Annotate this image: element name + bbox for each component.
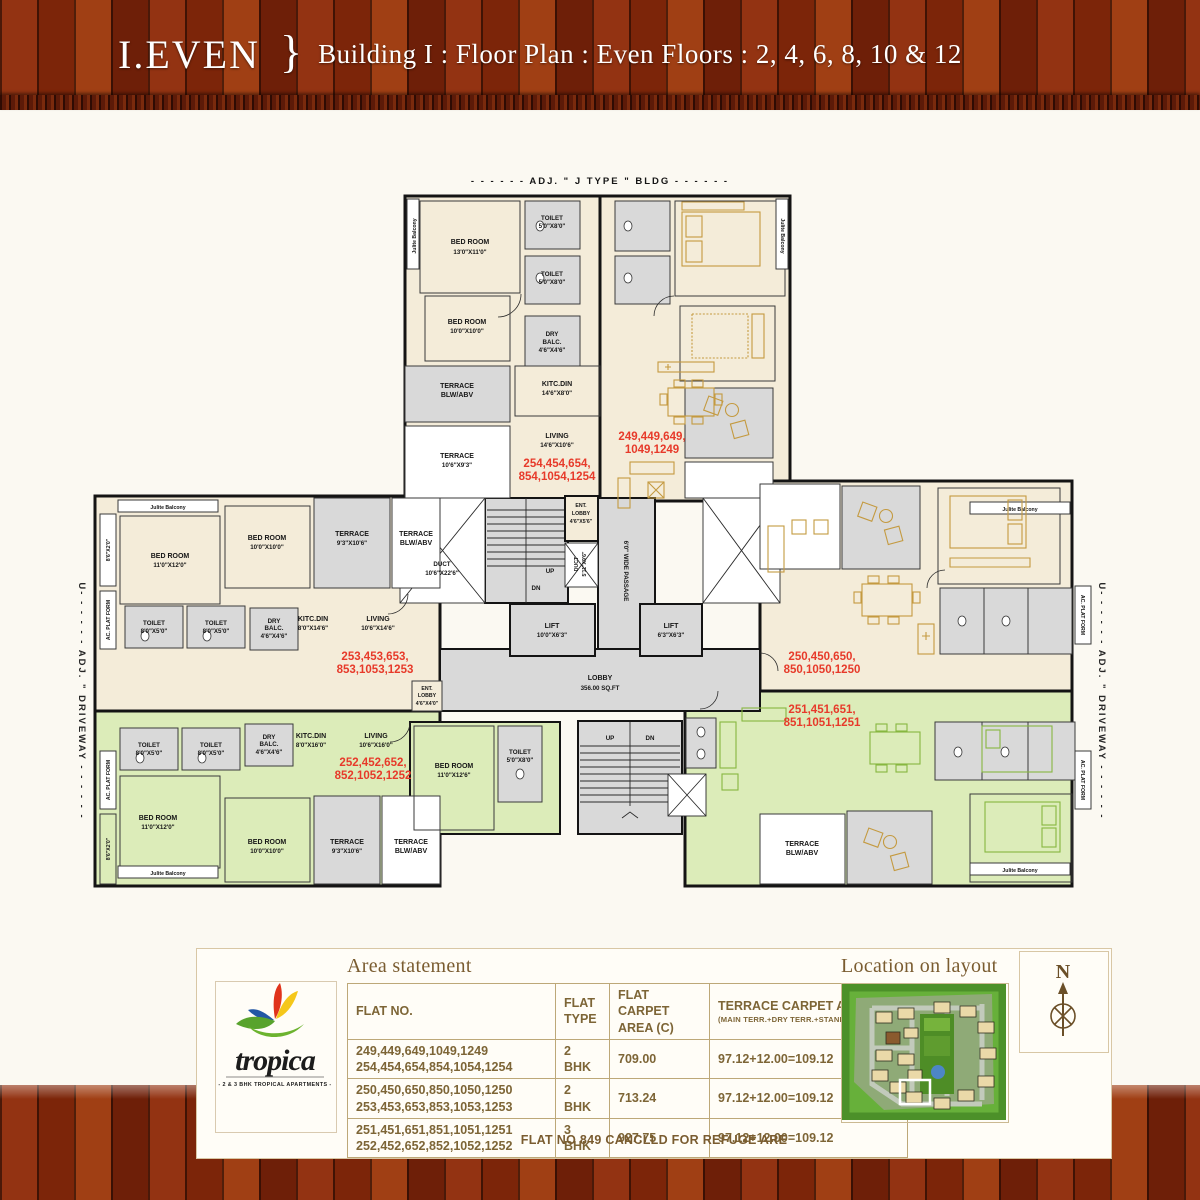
table-header-row: FLAT NO. FLAT TYPE FLAT CARPET AREA (C) … [348,984,908,1040]
room-label: KITC.DIN [298,616,328,623]
compass: N [1019,951,1109,1053]
page-title: I.EVEN } Building I : Floor Plan : Even … [118,0,962,108]
refuge-note: FLAT NO 849 CANCLLD FOR REFUGE ARE [197,1133,1111,1147]
julite-balcony-label: Julite Balcony [1002,868,1037,874]
room-dim: 10'6"X14'6" [361,625,395,632]
title-text: Building I : Floor Plan : Even Floors : … [318,39,962,70]
tropica-logo-icon: tropica - 2 & 3 BHK TROPICAL APARTMENTS … [216,982,334,1130]
flat-number: 853,1053,1253 [337,664,414,676]
flat-list: 253,453,653,853,1053,1253 [356,1099,547,1115]
flat-number: 254,454,654, [523,458,590,470]
core-wc [686,718,716,768]
ac-platform-label: AC. PLAT FORM [106,600,112,640]
room-dim: 9'3"X10'6" [332,848,362,855]
room-label: TERRACE [335,531,369,538]
room-label: BLW/ABV [395,848,428,855]
room-label: BALC. [543,339,562,346]
flat-type: 2 BHK [556,1079,610,1119]
passage-label: 6'0" WIDE PASSAGE [622,541,629,602]
table-row: 250,450,650,850,1050,1250253,453,653,853… [348,1079,908,1119]
room-label: TERRACE [394,839,428,846]
logo-wordmark: tropica [235,1044,316,1077]
room-label: TOILET [541,271,563,278]
flat-list: 250,450,650,850,1050,1250 [356,1082,547,1098]
stairs-dn-label: DN [646,735,655,742]
room-label: DRY [263,734,277,741]
area-statement-panel: tropica - 2 & 3 BHK TROPICAL APARTMENTS … [196,948,1112,1159]
room-label: BED ROOM [448,319,487,326]
ac-platform-label: AC. PLAT FORM [1079,595,1085,635]
strip-dim: 8'6"X2'0" [106,837,112,860]
room-dim: 5'0"X8'0" [539,223,566,230]
julite-balcony-label: Julite Balcony [779,218,785,253]
room-label: LIVING [366,616,390,623]
stairs-up-label: UP [606,735,615,742]
flat-number: 852,1052,1252 [335,770,412,782]
room-dim: 11'0"X12'0" [153,562,186,569]
area-statement-heading: Area statement [347,955,472,978]
brace-glyph: } [280,25,302,78]
room-dim: 5'11"X9'6" [582,551,588,577]
carpet-area: 709.00 [610,1039,710,1079]
room-dim: 10'0"X10'0" [250,848,284,855]
room-label: KITC.DIN [542,381,572,388]
room-dim: 10'6"X22'6" [425,570,459,577]
toilet-icon [697,727,705,737]
room-label: BLW/ABV [441,392,474,399]
room-label: TERRACE [440,383,474,390]
room-label: DUCT [433,561,450,568]
room-label: BED ROOM [139,815,178,822]
lift-1 [510,604,595,656]
ac-platform-label: AC. PLAT FORM [1079,760,1085,800]
room-label: BED ROOM [151,553,190,560]
compass-n-label: N [1056,961,1071,983]
room-label: LIFT [545,623,560,630]
room-label: TERRACE [440,453,474,460]
room-dim: 11'0"X12'6" [437,772,470,779]
room-label: TOILET [200,742,222,749]
room-label: BED ROOM [248,839,287,846]
flat-list: 249,449,649,1049,1249 [356,1043,547,1059]
room-label: TOILET [138,742,160,749]
flat-number: 253,453,653, [341,651,408,663]
room-label: KITC.DIN [296,733,326,740]
col-carpet-area: FLAT CARPET AREA (C) [610,984,710,1040]
room-label: BED ROOM [451,239,490,246]
julite-balcony-label: Julite Balcony [150,505,185,511]
stairs-up-label: UP [546,568,555,575]
room-label: TERRACE [330,839,364,846]
strip-dim: 8'6"X2'0" [106,538,112,561]
flat-number: 252,452,652, [339,757,406,769]
floor-code: I.EVEN [118,31,260,78]
room-dim: 5'0"X8'0" [539,279,566,286]
ac-platform-label: AC. PLAT FORM [106,760,112,800]
room-dim: 8'0"X16'0" [296,742,326,749]
carpet-area: 713.24 [610,1079,710,1119]
flat-number: 854,1054,1254 [519,471,596,483]
col-flat-type: FLAT TYPE [556,984,610,1040]
room-label: BED ROOM [248,535,287,542]
room-dim: 6'3"X6'3" [658,632,685,639]
area-statement-table: FLAT NO. FLAT TYPE FLAT CARPET AREA (C) … [347,983,908,1158]
room-label: TOILET [143,620,165,627]
driveway-label-right: U- - - - - - ADJ. " DRIVEWAY - - - - - - [1096,582,1107,819]
julite-balcony-label: Julite Balcony [150,871,185,877]
room-label: LIVING [545,433,569,440]
flat-number: 251,451,651, [788,704,855,716]
stairs-dn-label: DN [532,585,541,592]
room-label: LIFT [664,623,679,630]
site-map-image [842,984,1006,1120]
room-dim: 8'0"X5'0" [203,628,230,635]
driveway-label-left: U- - - - - - ADJ. " DRIVEWAY - - - - - - [76,582,87,819]
floor-plan: - - - - - - ADJ. " J TYPE " BLDG - - - -… [70,166,1115,926]
room-label: BLW/ABV [786,850,819,857]
room-label: TERRACE [785,841,819,848]
room-dim: 4'6"X4'6" [256,749,283,756]
flat-list: 254,454,654,854,1054,1254 [356,1059,547,1075]
room-dim: 4'6"X4'6" [539,347,566,354]
staircase-top [485,498,568,603]
room-dim: 10'6"X9'3" [442,462,472,469]
logo-tagline: - 2 & 3 BHK TROPICAL APARTMENTS - [218,1082,331,1088]
flat-number: 850,1050,1250 [784,664,861,676]
lift-2 [640,604,702,656]
room-dim: 11'0"X12'0" [141,824,174,831]
room-label: BED ROOM [435,763,474,770]
location-heading: Location on layout [841,955,997,978]
room-dim: 8'0"X5'0" [198,750,225,757]
room-dim: 14'6"X8'0" [542,390,572,397]
north-compass-icon: N [1020,952,1106,1050]
room-label: BLW/ABV [400,540,433,547]
room-dim: 4'6"X4'0" [416,701,439,707]
room-dim: 4'6"X4'6" [261,633,288,640]
room-dim: 8'0"X14'6" [298,625,328,632]
flat-number: 851,1051,1251 [784,717,861,729]
room-label: LOBBY [588,675,613,682]
room-dim: 14'6"X10'6" [540,442,574,449]
col-flat-no: FLAT NO. [348,984,556,1040]
flat-number: 249,449,649, [618,431,685,443]
toilet-icon [697,749,705,759]
room-dim: 4'6"X5'6" [570,519,593,525]
room-dim: 10'0"X10'0" [450,328,484,335]
room-label: ENT. [575,503,587,509]
flat-number: 1049,1249 [625,444,679,456]
room-label: LOBBY [418,693,437,699]
room-dim: 8'0"X5'0" [141,628,168,635]
table-row: 249,449,649,1049,1249254,454,654,854,105… [348,1039,908,1079]
room-dim: 9'3"X10'6" [337,540,367,547]
brand-logo: tropica - 2 & 3 BHK TROPICAL APARTMENTS … [215,981,337,1133]
flat-type: 2 BHK [556,1039,610,1079]
flat-number: 250,450,650, [788,651,855,663]
room-label: BALC. [265,625,284,632]
room-label: TERRACE [399,531,433,538]
room-dim: 13'0"X11'0" [453,249,486,256]
room-label: LIVING [364,733,388,740]
julite-balcony-label: Julite Balcony [412,218,418,253]
room-label: BALC. [260,741,279,748]
room-dim: 10'0"X10'0" [250,544,284,551]
room-label: TOILET [509,749,531,756]
room-dim: 8'0"X5'0" [136,750,163,757]
room-label: ENT. [421,686,433,692]
room-dim: 5'0"X8'0" [507,757,534,764]
room-label: LOBBY [572,511,591,517]
room-dim: 10'0"X6'3" [537,632,567,639]
room-label: DUCT [574,556,580,571]
room-label: TOILET [541,215,563,222]
room-label: TOILET [205,620,227,627]
room-dim: 10'6"X16'0" [359,742,393,749]
room-label: DRY [268,618,282,625]
room-label: DRY [546,331,560,338]
adjacent-building-label: - - - - - - ADJ. " J TYPE " BLDG - - - -… [471,176,729,187]
location-map [841,983,1009,1123]
room-dim: 356.00 SQ.FT [581,685,620,692]
